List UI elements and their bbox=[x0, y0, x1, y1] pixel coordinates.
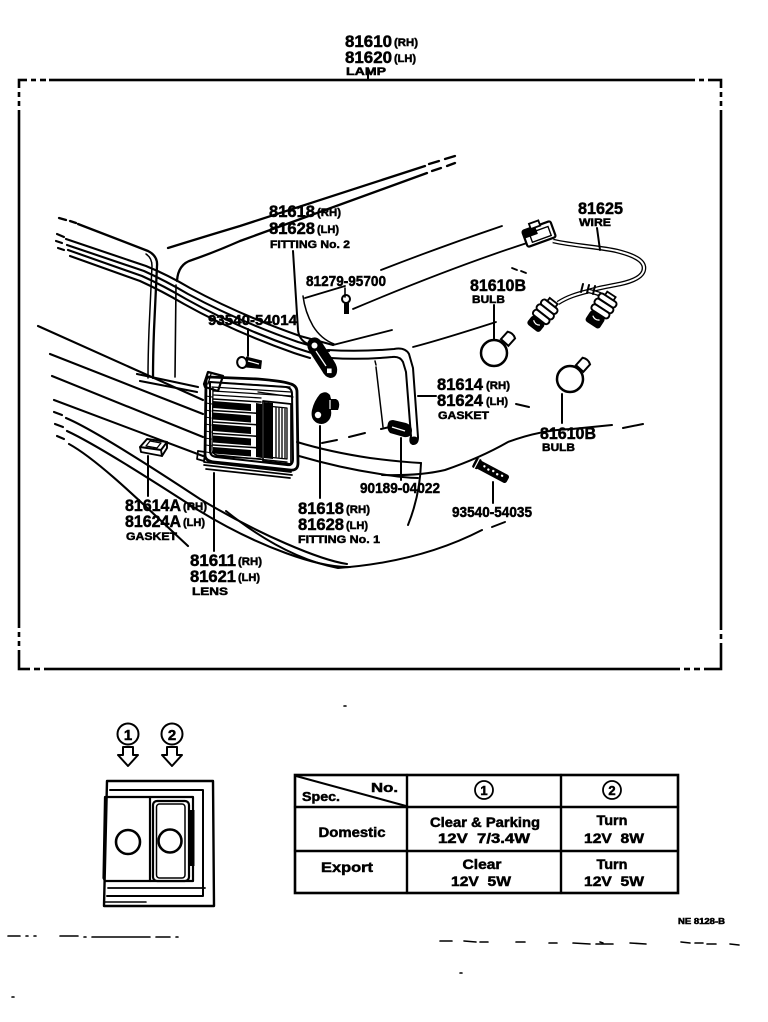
svg-text:GASKET: GASKET bbox=[438, 410, 489, 422]
svg-text:1: 1 bbox=[480, 783, 487, 798]
svg-text:WIRE: WIRE bbox=[579, 217, 611, 229]
svg-text:FITTING No. 1: FITTING No. 1 bbox=[298, 534, 380, 546]
svg-text:(LH): (LH) bbox=[346, 520, 368, 532]
svg-text:(RH): (RH) bbox=[317, 207, 341, 219]
svg-text:81610B: 81610B bbox=[540, 424, 596, 443]
svg-text:12V 8W: 12V 8W bbox=[584, 830, 645, 846]
svg-text:LAMP: LAMP bbox=[346, 66, 386, 78]
svg-text:BULB: BULB bbox=[542, 442, 575, 454]
svg-text:12V 5W: 12V 5W bbox=[584, 873, 645, 889]
svg-text:(LH): (LH) bbox=[183, 517, 205, 529]
svg-text:93540-54035: 93540-54035 bbox=[452, 504, 532, 521]
svg-text:Export: Export bbox=[321, 859, 373, 875]
svg-text:Spec.: Spec. bbox=[302, 789, 340, 804]
svg-text:(RH): (RH) bbox=[183, 501, 207, 513]
svg-text:No.: No. bbox=[371, 780, 398, 795]
svg-text:(RH): (RH) bbox=[238, 556, 262, 568]
svg-text:(LH): (LH) bbox=[394, 53, 416, 65]
svg-text:(LH): (LH) bbox=[317, 224, 339, 236]
svg-text:(RH): (RH) bbox=[394, 37, 418, 49]
svg-text:81624: 81624 bbox=[437, 391, 484, 410]
svg-text:FITTING No. 2: FITTING No. 2 bbox=[270, 239, 350, 251]
svg-text:Turn: Turn bbox=[597, 856, 628, 872]
svg-text:(LH): (LH) bbox=[238, 572, 260, 584]
svg-text:2: 2 bbox=[608, 783, 615, 798]
svg-text:81620: 81620 bbox=[345, 48, 392, 67]
svg-text:Domestic: Domestic bbox=[319, 824, 386, 840]
svg-text:81628: 81628 bbox=[269, 219, 315, 238]
svg-text:81628: 81628 bbox=[298, 515, 344, 534]
svg-text:81610B: 81610B bbox=[470, 276, 526, 295]
svg-text:12V 7/3.4W: 12V 7/3.4W bbox=[438, 830, 531, 846]
svg-text:81625: 81625 bbox=[578, 199, 623, 218]
svg-text:Clear & Parking: Clear & Parking bbox=[430, 814, 540, 830]
svg-text:1: 1 bbox=[124, 727, 132, 744]
svg-text:93540-54014: 93540-54014 bbox=[208, 312, 298, 329]
svg-text:(RH): (RH) bbox=[346, 504, 370, 516]
svg-text:90189-04022: 90189-04022 bbox=[360, 480, 440, 497]
svg-text:(LH): (LH) bbox=[486, 396, 508, 408]
svg-text:LENS: LENS bbox=[192, 586, 228, 598]
svg-text:81279-95700: 81279-95700 bbox=[306, 273, 386, 290]
svg-text:Turn: Turn bbox=[597, 812, 628, 828]
svg-text:Clear: Clear bbox=[463, 856, 503, 872]
svg-text:81621: 81621 bbox=[190, 567, 236, 586]
svg-text:(RH): (RH) bbox=[486, 380, 510, 392]
svg-text:2: 2 bbox=[168, 727, 176, 744]
svg-text:GASKET: GASKET bbox=[126, 531, 177, 543]
svg-text:BULB: BULB bbox=[472, 294, 505, 306]
svg-text:81624A: 81624A bbox=[125, 512, 181, 531]
svg-text:NE 8128-B: NE 8128-B bbox=[678, 917, 725, 926]
svg-text:12V 5W: 12V 5W bbox=[451, 873, 512, 889]
